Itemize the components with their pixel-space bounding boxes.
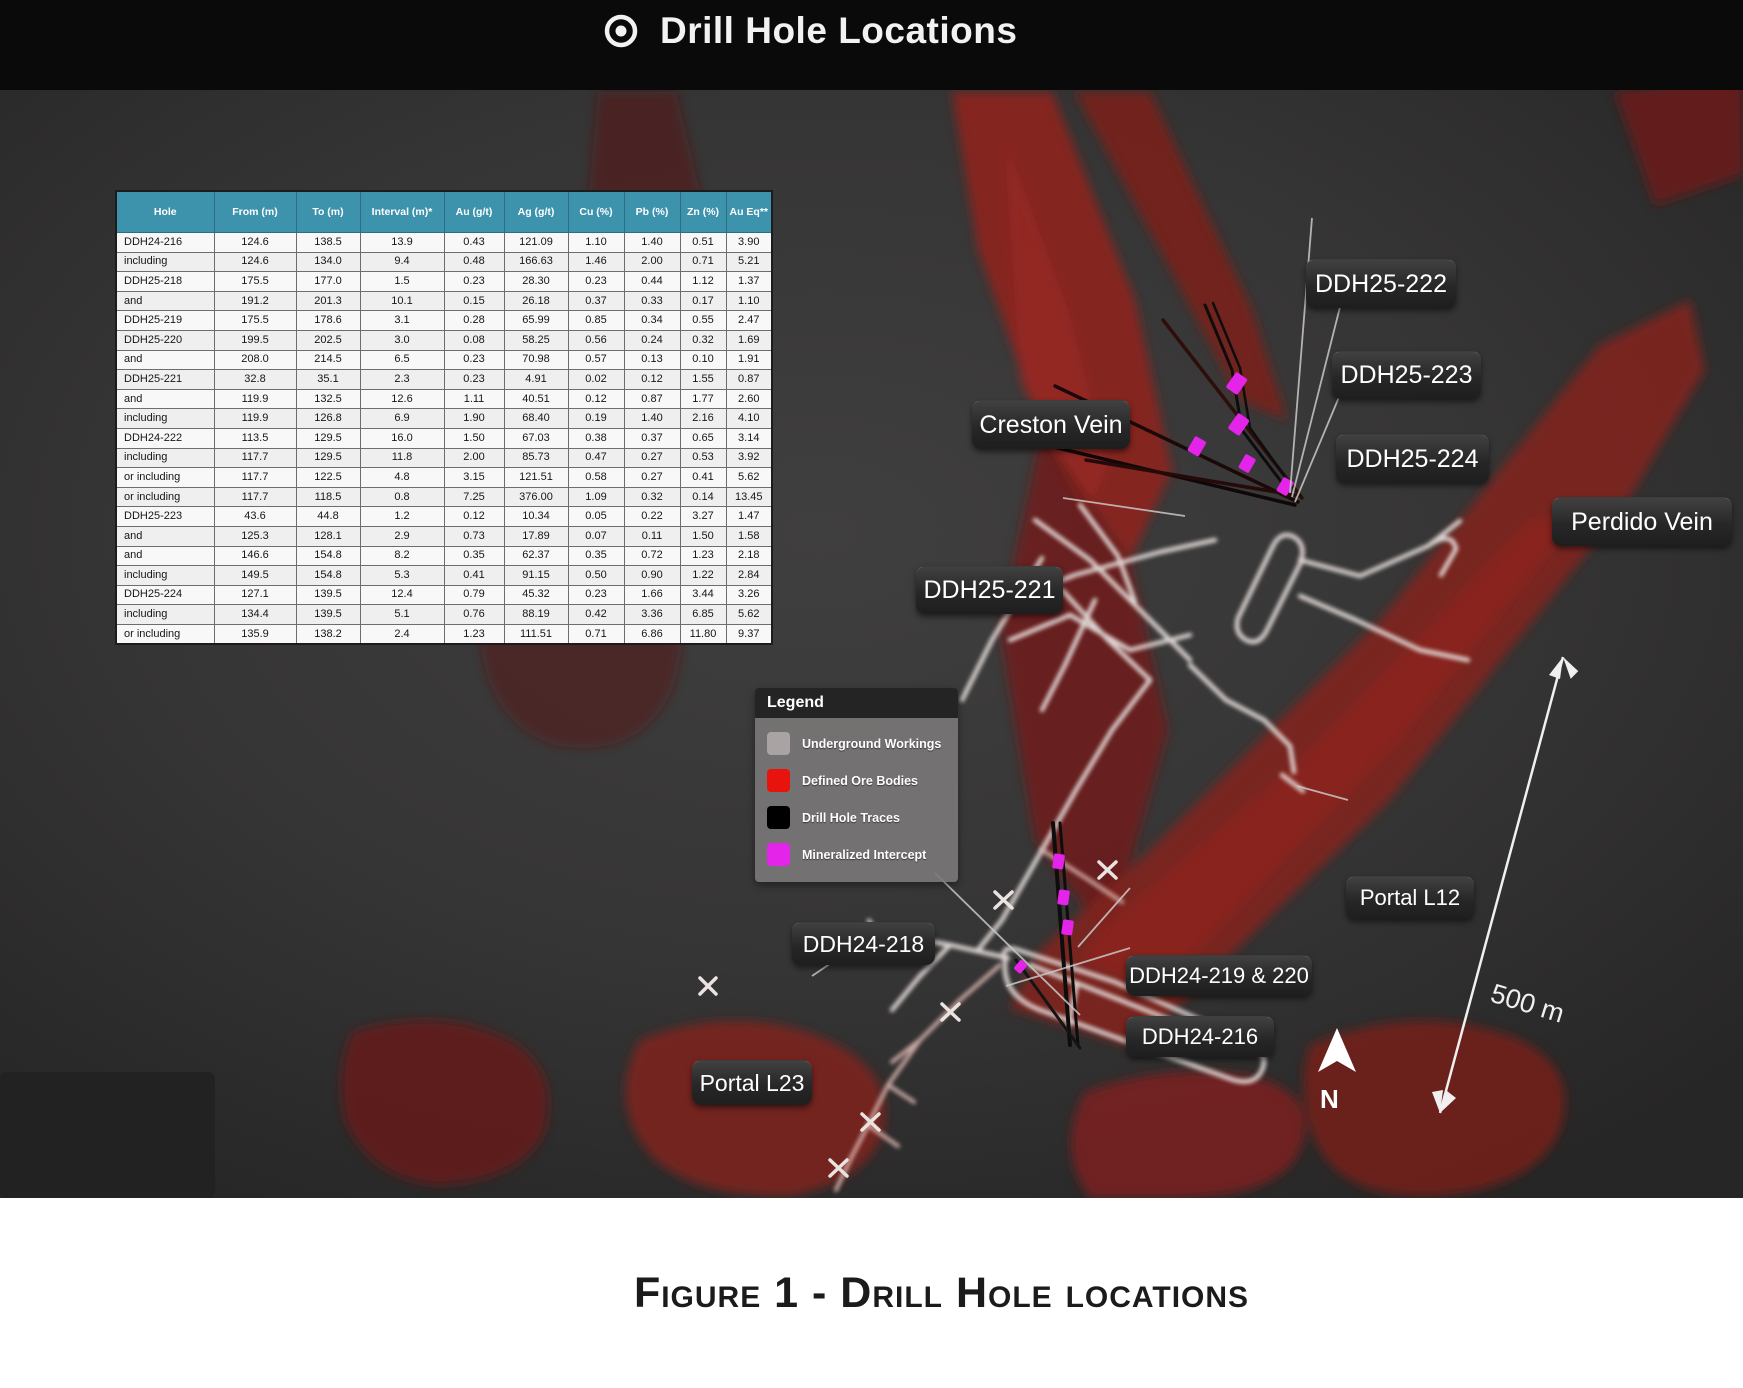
legend-item-label: Mineralized Intercept: [802, 848, 926, 862]
table-cell: 1.46: [568, 252, 624, 272]
legend-title: Legend: [755, 688, 958, 718]
table-cell: 2.3: [360, 370, 444, 390]
table-cell: 125.3: [214, 526, 296, 546]
table-cell: 0.05: [568, 507, 624, 527]
table-cell: including: [116, 409, 214, 429]
table-cell: 28.30: [504, 272, 568, 292]
eye-visibility-icon[interactable]: [601, 11, 641, 56]
table-cell: 0.07: [568, 526, 624, 546]
table-cell: DDH25-221: [116, 370, 214, 390]
defined-ore-bodies-swatch: [767, 769, 790, 792]
table-cell: 32.8: [214, 370, 296, 390]
label-ddh24-216: DDH24-216: [1126, 1016, 1274, 1057]
table-cell: including: [116, 448, 214, 468]
table-cell: 0.8: [360, 487, 444, 507]
table-cell: 154.8: [296, 566, 360, 586]
table-cell: 0.11: [624, 526, 680, 546]
table-cell: 119.9: [214, 389, 296, 409]
table-cell: 175.5: [214, 272, 296, 292]
table-cell: 139.5: [296, 605, 360, 625]
table-cell: 2.60: [726, 389, 772, 409]
table-cell: 124.6: [214, 233, 296, 253]
table-row: including149.5154.85.30.4191.150.500.901…: [116, 566, 772, 586]
table-cell: 40.51: [504, 389, 568, 409]
table-cell: 0.76: [444, 605, 504, 625]
table-cell: 118.5: [296, 487, 360, 507]
table-cell: DDH25-220: [116, 330, 214, 350]
table-cell: 0.14: [680, 487, 726, 507]
table-cell: 113.5: [214, 428, 296, 448]
table-cell: 126.8: [296, 409, 360, 429]
table-cell: 0.65: [680, 428, 726, 448]
table-cell: 1.10: [568, 233, 624, 253]
table-cell: 26.18: [504, 291, 568, 311]
table-cell: 4.8: [360, 468, 444, 488]
table-cell: 1.69: [726, 330, 772, 350]
table-cell: 1.23: [444, 624, 504, 644]
table-cell: 2.9: [360, 526, 444, 546]
table-cell: 119.9: [214, 409, 296, 429]
table-cell: DDH25-223: [116, 507, 214, 527]
table-cell: 4.91: [504, 370, 568, 390]
table-cell: 6.9: [360, 409, 444, 429]
table-cell: 0.35: [568, 546, 624, 566]
col-header: To (m): [296, 191, 360, 233]
drill-hole-traces-swatch: [767, 806, 790, 829]
table-cell: including: [116, 252, 214, 272]
table-cell: 0.12: [444, 507, 504, 527]
col-header: Interval (m)*: [360, 191, 444, 233]
table-cell: 177.0: [296, 272, 360, 292]
table-cell: 10.1: [360, 291, 444, 311]
table-row: DDH24-222113.5129.516.01.5067.030.380.37…: [116, 428, 772, 448]
table-cell: 1.09: [568, 487, 624, 507]
table-cell: 0.43: [444, 233, 504, 253]
table-header: Hole From (m) To (m) Interval (m)* Au (g…: [116, 191, 772, 233]
table-cell: 3.44: [680, 585, 726, 605]
table-cell: 0.33: [624, 291, 680, 311]
table-cell: DDH25-224: [116, 585, 214, 605]
table-cell: 0.15: [444, 291, 504, 311]
table-cell: 0.19: [568, 409, 624, 429]
table-row: DDH25-224127.1139.512.40.7945.320.231.66…: [116, 585, 772, 605]
table-cell: 129.5: [296, 428, 360, 448]
table-cell: 3.14: [726, 428, 772, 448]
table-cell: 111.51: [504, 624, 568, 644]
table-cell: 0.41: [444, 566, 504, 586]
table-cell: 12.4: [360, 585, 444, 605]
table-cell: 199.5: [214, 330, 296, 350]
table-row: DDH25-22132.835.12.30.234.910.020.121.55…: [116, 370, 772, 390]
table-cell: 0.23: [444, 272, 504, 292]
table-row: DDH24-216124.6138.513.90.43121.091.101.4…: [116, 233, 772, 253]
table-row: DDH25-22343.644.81.20.1210.340.050.223.2…: [116, 507, 772, 527]
table-cell: 0.85: [568, 311, 624, 331]
table-cell: 70.98: [504, 350, 568, 370]
table-cell: 0.73: [444, 526, 504, 546]
table-cell: 128.1: [296, 526, 360, 546]
table-cell: 175.5: [214, 311, 296, 331]
table-cell: 0.44: [624, 272, 680, 292]
table-cell: 117.7: [214, 448, 296, 468]
table-row: DDH25-219175.5178.63.10.2865.990.850.340…: [116, 311, 772, 331]
table-row: including124.6134.09.40.48166.631.462.00…: [116, 252, 772, 272]
table-cell: 0.27: [624, 468, 680, 488]
table-cell: 0.02: [568, 370, 624, 390]
label-portal-l12: Portal L12: [1346, 876, 1474, 919]
col-header: Pb (%): [624, 191, 680, 233]
legend-item-label: Underground Workings: [802, 737, 941, 751]
table-cell: 2.16: [680, 409, 726, 429]
table-cell: 0.50: [568, 566, 624, 586]
table-cell: or including: [116, 487, 214, 507]
table-cell: 0.23: [444, 370, 504, 390]
table-cell: 8.2: [360, 546, 444, 566]
table-cell: 0.23: [444, 350, 504, 370]
table-cell: and: [116, 389, 214, 409]
table-cell: 1.77: [680, 389, 726, 409]
table-cell: or including: [116, 468, 214, 488]
table-cell: 43.6: [214, 507, 296, 527]
legend-body: Underground Workings Defined Ore Bodies …: [755, 718, 958, 882]
legend-item-label: Drill Hole Traces: [802, 811, 900, 825]
table-cell: 2.47: [726, 311, 772, 331]
label-portal-l23: Portal L23: [692, 1060, 812, 1105]
table-cell: 5.62: [726, 605, 772, 625]
table-cell: 2.00: [624, 252, 680, 272]
table-cell: 0.38: [568, 428, 624, 448]
table-cell: 2.4: [360, 624, 444, 644]
table-row: or including117.7122.54.83.15121.510.580…: [116, 468, 772, 488]
table-cell: 0.22: [624, 507, 680, 527]
table-cell: 121.51: [504, 468, 568, 488]
table-row: DDH25-218175.5177.01.50.2328.300.230.441…: [116, 272, 772, 292]
table-cell: DDH24-222: [116, 428, 214, 448]
table-cell: 1.10: [726, 291, 772, 311]
col-header: Ag (g/t): [504, 191, 568, 233]
table-cell: 4.10: [726, 409, 772, 429]
table-cell: 0.35: [444, 546, 504, 566]
label-perdido-vein: Perdido Vein: [1552, 497, 1732, 546]
col-header: Cu (%): [568, 191, 624, 233]
table-cell: 178.6: [296, 311, 360, 331]
table-cell: and: [116, 546, 214, 566]
table-cell: 376.00: [504, 487, 568, 507]
table-cell: 134.0: [296, 252, 360, 272]
table-cell: 0.48: [444, 252, 504, 272]
table-cell: 17.89: [504, 526, 568, 546]
table-row: and125.3128.12.90.7317.890.070.111.501.5…: [116, 526, 772, 546]
table-cell: 208.0: [214, 350, 296, 370]
table-cell: 85.73: [504, 448, 568, 468]
legend-item: Mineralized Intercept: [767, 843, 958, 866]
table-row: and119.9132.512.61.1140.510.120.871.772.…: [116, 389, 772, 409]
assay-table-body: DDH24-216124.6138.513.90.43121.091.101.4…: [116, 233, 772, 645]
table-cell: 135.9: [214, 624, 296, 644]
table-cell: 0.87: [624, 389, 680, 409]
figure-caption-strip: Figure 1 - Drill Hole locations: [0, 1198, 1743, 1388]
table-cell: 1.40: [624, 233, 680, 253]
label-ddh25-221: DDH25-221: [916, 566, 1063, 614]
assay-results-table: Hole From (m) To (m) Interval (m)* Au (g…: [115, 190, 773, 645]
table-cell: 68.40: [504, 409, 568, 429]
table-cell: 0.10: [680, 350, 726, 370]
mineralized-intercept-swatch: [767, 843, 790, 866]
table-cell: 0.08: [444, 330, 504, 350]
north-label: N: [1320, 1084, 1339, 1115]
table-cell: DDH25-218: [116, 272, 214, 292]
table-cell: 3.90: [726, 233, 772, 253]
table-cell: 2.00: [444, 448, 504, 468]
table-cell: 0.13: [624, 350, 680, 370]
table-cell: 3.92: [726, 448, 772, 468]
table-cell: 127.1: [214, 585, 296, 605]
table-cell: 117.7: [214, 487, 296, 507]
table-cell: 62.37: [504, 546, 568, 566]
table-cell: 0.41: [680, 468, 726, 488]
table-cell: 0.17: [680, 291, 726, 311]
table-cell: 0.24: [624, 330, 680, 350]
table-row: and208.0214.56.50.2370.980.570.130.101.9…: [116, 350, 772, 370]
label-ddh24-219-220: DDH24-219 & 220: [1126, 955, 1312, 996]
table-row: or including135.9138.22.41.23111.510.716…: [116, 624, 772, 644]
table-cell: 45.32: [504, 585, 568, 605]
legend-item: Defined Ore Bodies: [767, 769, 958, 792]
col-header: Au Eq**: [726, 191, 772, 233]
table-cell: 201.3: [296, 291, 360, 311]
table-cell: 0.57: [568, 350, 624, 370]
table-cell: 0.12: [568, 389, 624, 409]
table-cell: 166.63: [504, 252, 568, 272]
table-cell: 1.22: [680, 566, 726, 586]
table-cell: 6.86: [624, 624, 680, 644]
table-cell: and: [116, 350, 214, 370]
table-cell: 2.18: [726, 546, 772, 566]
table-cell: including: [116, 566, 214, 586]
table-cell: 91.15: [504, 566, 568, 586]
table-cell: 35.1: [296, 370, 360, 390]
viewport-title: Drill Hole Locations: [660, 10, 1017, 52]
table-cell: 0.58: [568, 468, 624, 488]
table-cell: 0.32: [624, 487, 680, 507]
table-cell: 0.23: [568, 585, 624, 605]
table-cell: 3.27: [680, 507, 726, 527]
table-cell: 10.34: [504, 507, 568, 527]
table-cell: 9.4: [360, 252, 444, 272]
figure-caption: Figure 1 - Drill Hole locations: [634, 1269, 1249, 1318]
table-cell: and: [116, 291, 214, 311]
legend-panel: Legend Underground Workings Defined Ore …: [755, 688, 958, 882]
table-cell: 0.34: [624, 311, 680, 331]
table-cell: 0.56: [568, 330, 624, 350]
table-row: or including117.7118.50.87.25376.001.090…: [116, 487, 772, 507]
legend-item: Drill Hole Traces: [767, 806, 958, 829]
table-cell: or including: [116, 624, 214, 644]
table-cell: 3.1: [360, 311, 444, 331]
table-cell: 12.6: [360, 389, 444, 409]
table-cell: 1.12: [680, 272, 726, 292]
table-cell: 1.91: [726, 350, 772, 370]
table-cell: 0.42: [568, 605, 624, 625]
table-cell: 1.11: [444, 389, 504, 409]
table-cell: 3.0: [360, 330, 444, 350]
legend-item: Underground Workings: [767, 732, 958, 755]
table-cell: 2.84: [726, 566, 772, 586]
table-cell: 0.23: [568, 272, 624, 292]
table-cell: 0.87: [726, 370, 772, 390]
label-ddh25-224: DDH25-224: [1336, 434, 1489, 483]
table-row: and191.2201.310.10.1526.180.370.330.171.…: [116, 291, 772, 311]
table-cell: 0.79: [444, 585, 504, 605]
table-cell: 129.5: [296, 448, 360, 468]
table-cell: 44.8: [296, 507, 360, 527]
table-cell: 0.55: [680, 311, 726, 331]
3d-viewport: Hole From (m) To (m) Interval (m)* Au (g…: [0, 90, 1743, 1198]
table-cell: 154.8: [296, 546, 360, 566]
legend-item-label: Defined Ore Bodies: [802, 774, 918, 788]
table-cell: DDH25-219: [116, 311, 214, 331]
table-cell: 0.27: [624, 448, 680, 468]
table-cell: 1.40: [624, 409, 680, 429]
table-cell: including: [116, 605, 214, 625]
table-cell: 1.50: [444, 428, 504, 448]
table-row: and146.6154.88.20.3562.370.350.721.232.1…: [116, 546, 772, 566]
table-cell: 0.53: [680, 448, 726, 468]
table-cell: 138.2: [296, 624, 360, 644]
table-cell: 13.45: [726, 487, 772, 507]
table-cell: 139.5: [296, 585, 360, 605]
table-cell: 146.6: [214, 546, 296, 566]
table-cell: 1.55: [680, 370, 726, 390]
table-cell: 5.1: [360, 605, 444, 625]
label-creston-vein: Creston Vein: [972, 400, 1130, 449]
table-cell: 5.62: [726, 468, 772, 488]
table-cell: 5.21: [726, 252, 772, 272]
table-cell: 0.28: [444, 311, 504, 331]
table-cell: 11.80: [680, 624, 726, 644]
table-cell: 132.5: [296, 389, 360, 409]
table-cell: 1.2: [360, 507, 444, 527]
table-cell: 0.37: [624, 428, 680, 448]
table-cell: DDH24-216: [116, 233, 214, 253]
table-cell: 0.71: [568, 624, 624, 644]
table-cell: 3.36: [624, 605, 680, 625]
table-cell: 1.5: [360, 272, 444, 292]
table-cell: 122.5: [296, 468, 360, 488]
table-cell: 117.7: [214, 468, 296, 488]
col-header: Hole: [116, 191, 214, 233]
title-bar: Drill Hole Locations: [0, 0, 1743, 90]
table-cell: 58.25: [504, 330, 568, 350]
table-cell: 9.37: [726, 624, 772, 644]
table-cell: 0.51: [680, 233, 726, 253]
table-cell: 0.90: [624, 566, 680, 586]
label-ddh25-223: DDH25-223: [1332, 351, 1481, 399]
col-header: From (m): [214, 191, 296, 233]
table-cell: 11.8: [360, 448, 444, 468]
table-cell: 16.0: [360, 428, 444, 448]
table-cell: 1.66: [624, 585, 680, 605]
table-cell: 67.03: [504, 428, 568, 448]
table-cell: 7.25: [444, 487, 504, 507]
corner-panel: [0, 1072, 215, 1198]
table-cell: 121.09: [504, 233, 568, 253]
table-cell: 1.90: [444, 409, 504, 429]
table-row: including134.4139.55.10.7688.190.423.366…: [116, 605, 772, 625]
table-cell: 3.15: [444, 468, 504, 488]
table-cell: 5.3: [360, 566, 444, 586]
table-cell: 138.5: [296, 233, 360, 253]
label-ddh24-218: DDH24-218: [792, 922, 935, 965]
table-row: DDH25-220199.5202.53.00.0858.250.560.240…: [116, 330, 772, 350]
table-cell: 124.6: [214, 252, 296, 272]
table-cell: and: [116, 526, 214, 546]
table-cell: 214.5: [296, 350, 360, 370]
table-cell: 6.85: [680, 605, 726, 625]
table-cell: 3.26: [726, 585, 772, 605]
table-cell: 0.32: [680, 330, 726, 350]
table-cell: 0.47: [568, 448, 624, 468]
table-cell: 6.5: [360, 350, 444, 370]
table-row: including119.9126.86.91.9068.400.191.402…: [116, 409, 772, 429]
table-cell: 0.12: [624, 370, 680, 390]
label-ddh25-222: DDH25-222: [1306, 259, 1456, 308]
table-cell: 191.2: [214, 291, 296, 311]
table-cell: 149.5: [214, 566, 296, 586]
table-cell: 1.58: [726, 526, 772, 546]
table-cell: 0.72: [624, 546, 680, 566]
col-header: Zn (%): [680, 191, 726, 233]
table-cell: 0.37: [568, 291, 624, 311]
table-cell: 13.9: [360, 233, 444, 253]
table-cell: 202.5: [296, 330, 360, 350]
table-cell: 134.4: [214, 605, 296, 625]
table-cell: 0.71: [680, 252, 726, 272]
table-cell: 1.50: [680, 526, 726, 546]
table-cell: 1.47: [726, 507, 772, 527]
table-cell: 1.23: [680, 546, 726, 566]
table-row: including117.7129.511.82.0085.730.470.27…: [116, 448, 772, 468]
table-cell: 88.19: [504, 605, 568, 625]
table-cell: 65.99: [504, 311, 568, 331]
col-header: Au (g/t): [444, 191, 504, 233]
underground-workings-swatch: [767, 732, 790, 755]
table-cell: 1.37: [726, 272, 772, 292]
